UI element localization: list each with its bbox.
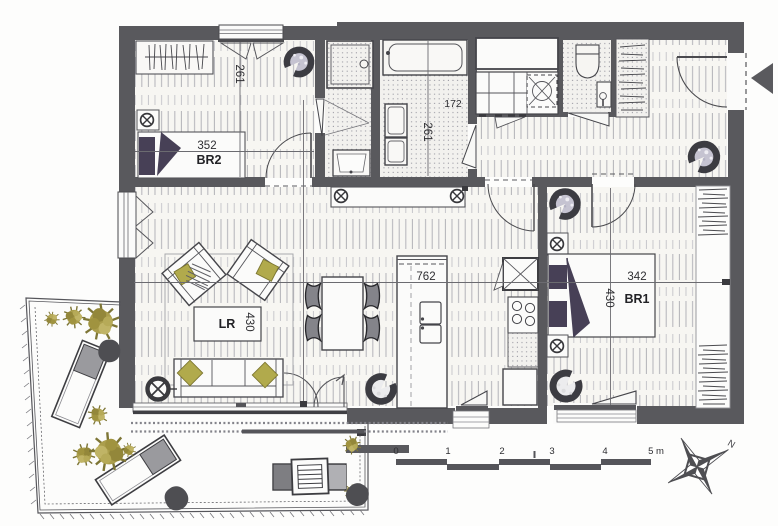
svg-text:0: 0: [393, 446, 398, 457]
svg-text:342: 342: [627, 271, 646, 283]
svg-text:LR: LR: [219, 317, 236, 331]
svg-text:762: 762: [416, 271, 435, 283]
svg-text:4: 4: [602, 446, 607, 457]
svg-text:3: 3: [549, 446, 554, 457]
svg-text:430: 430: [243, 312, 255, 331]
svg-text:BR1: BR1: [624, 292, 649, 306]
svg-text:172: 172: [444, 98, 462, 110]
svg-text:5 m: 5 m: [648, 446, 664, 457]
svg-text:430: 430: [603, 288, 615, 307]
svg-text:1: 1: [445, 446, 450, 457]
svg-text:BR2: BR2: [196, 153, 221, 167]
svg-text:261: 261: [233, 64, 245, 83]
svg-text:352: 352: [197, 140, 216, 152]
svg-text:2: 2: [499, 446, 504, 457]
svg-text:261: 261: [421, 122, 433, 141]
